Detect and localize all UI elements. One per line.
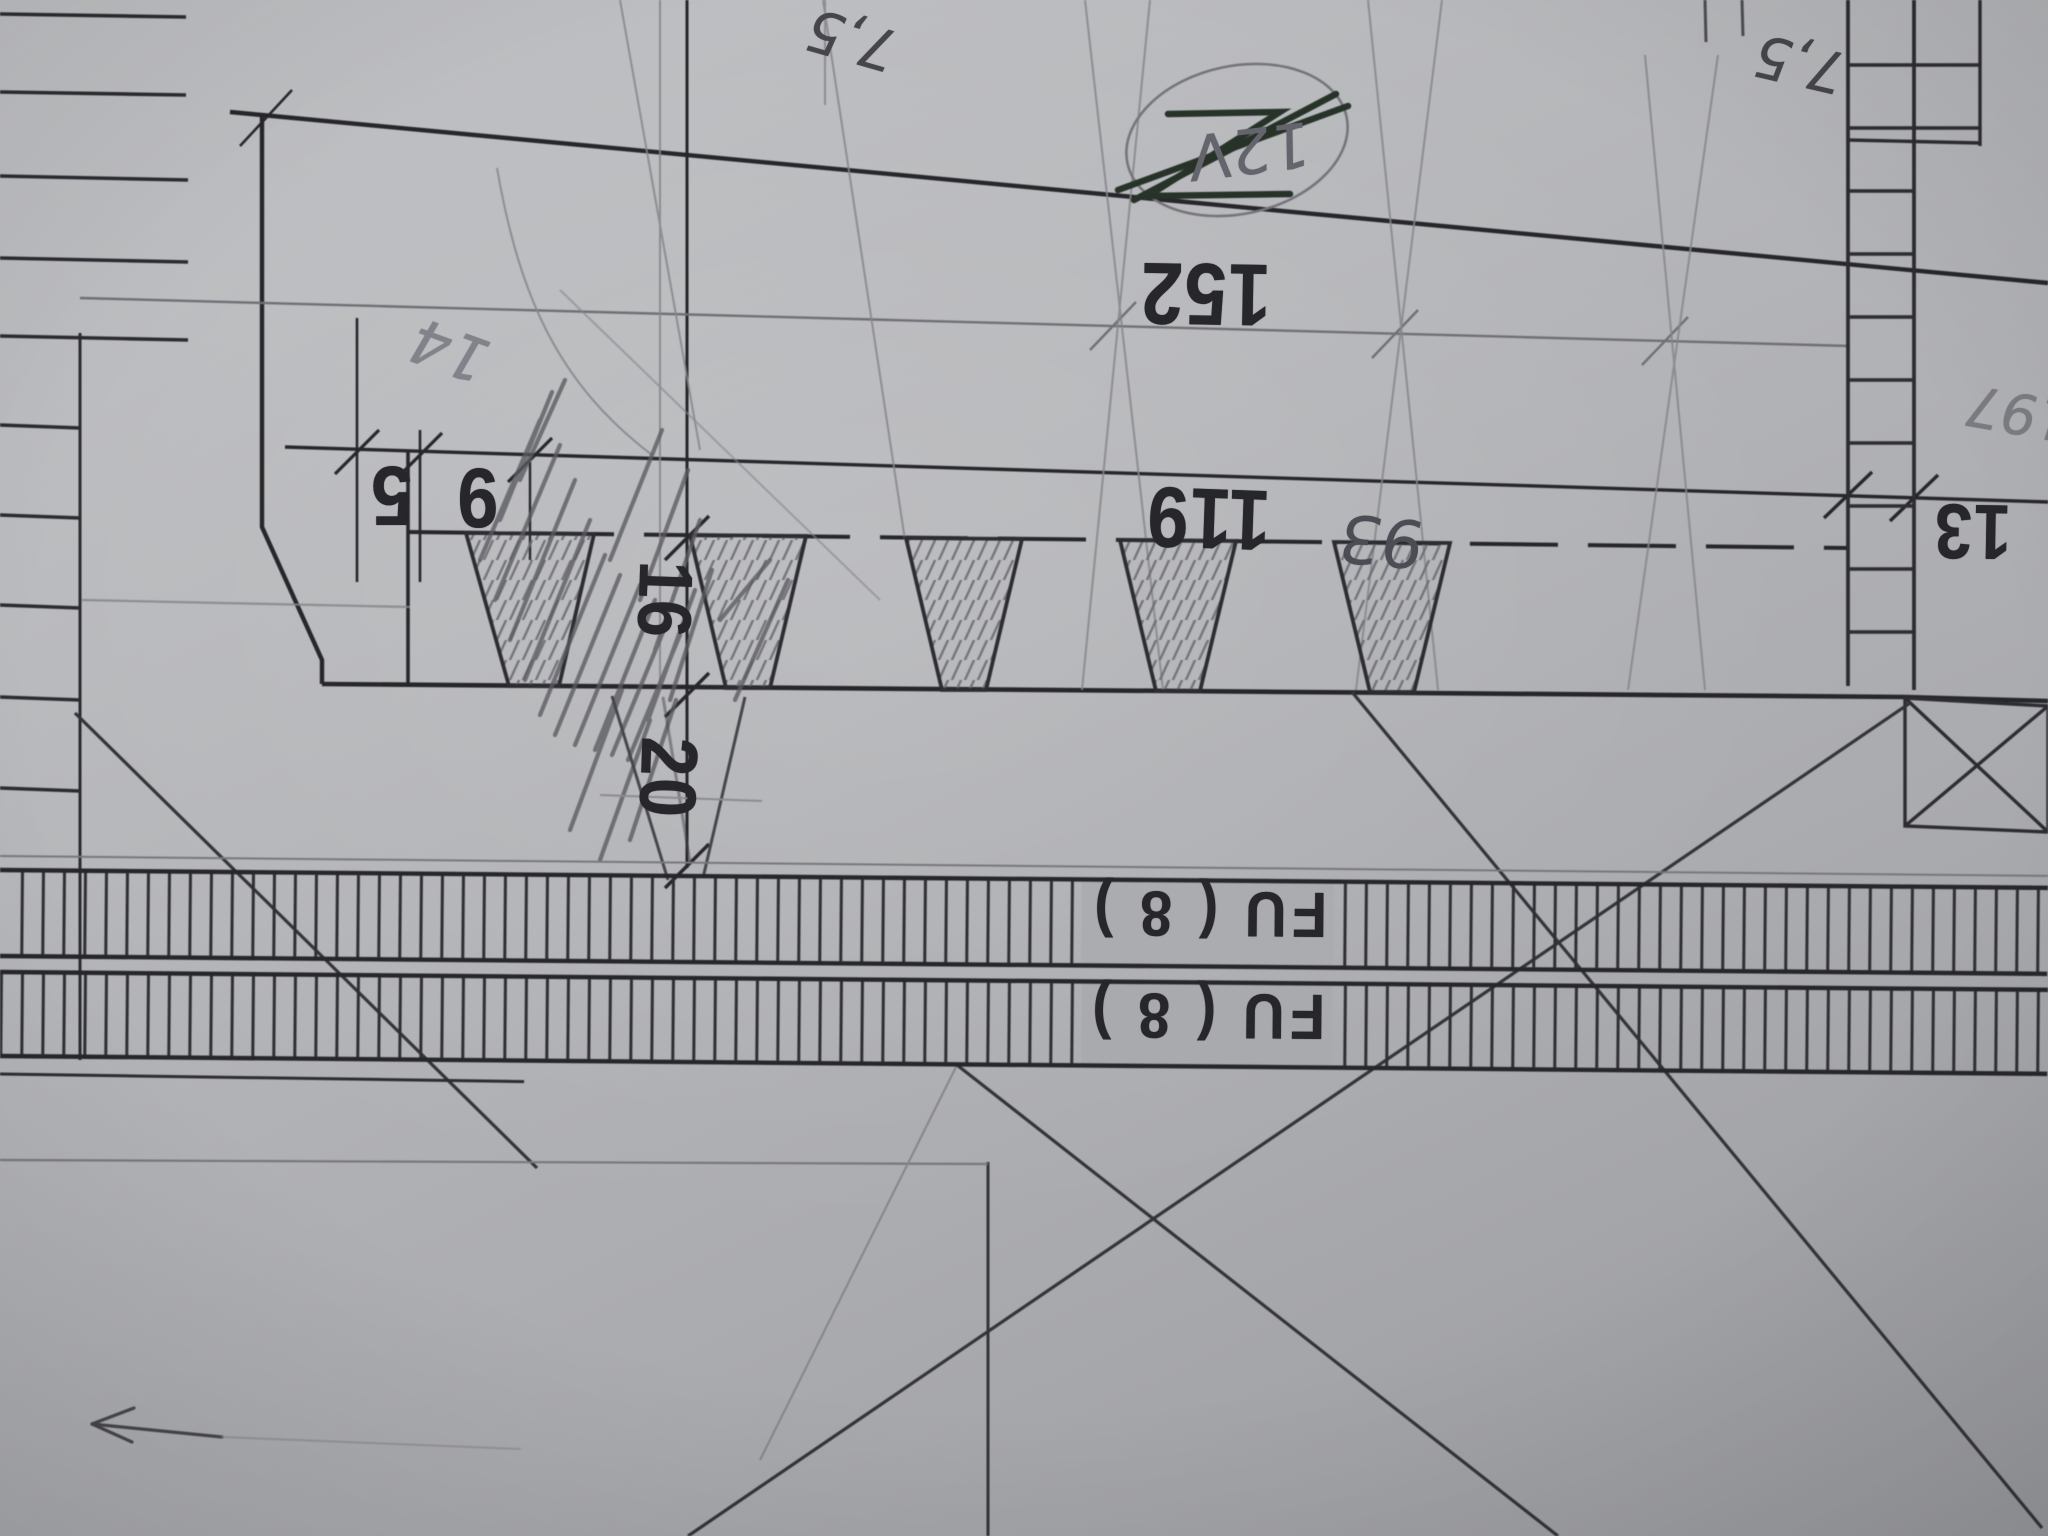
pencil-dimension-line-152 bbox=[80, 298, 1850, 365]
handwritten-12v-crossed: 12V bbox=[1189, 111, 1310, 188]
long-diagonals bbox=[0, 692, 2042, 1536]
rail-band-top bbox=[0, 856, 2048, 974]
trapezoid-2 bbox=[690, 535, 806, 688]
left-arrow bbox=[92, 1408, 520, 1449]
right-ladder bbox=[1848, 0, 1980, 690]
dim-20-label: 20 bbox=[627, 736, 710, 821]
dim-152-label: 152 bbox=[1139, 249, 1272, 339]
hatched-trapezoids bbox=[466, 533, 1450, 692]
fu8-label-top: FU ( 8 ) bbox=[1089, 881, 1328, 947]
fu8-label-bottom: FU ( 8 ) bbox=[1087, 983, 1326, 1049]
dim-16-label: 16 bbox=[625, 560, 704, 641]
handwritten-93: 93 bbox=[1334, 504, 1430, 576]
rail-band-bottom bbox=[0, 972, 2048, 1095]
dim-119-label: 119 bbox=[1144, 473, 1271, 563]
drawing-linework bbox=[0, 0, 2048, 1536]
photo-of-technical-drawing: 152 119 5 9 13 16 20 FU ( 8 ) FU ( 8 ) 7… bbox=[0, 0, 2048, 1536]
right-box-with-diagonals bbox=[1905, 698, 2048, 832]
trapezoid-3 bbox=[906, 538, 1022, 690]
pencil-construction-lines bbox=[82, 0, 1743, 690]
dim-5-label: 5 bbox=[370, 454, 413, 538]
main-outline bbox=[230, 0, 2048, 868]
dim-9-label: 9 bbox=[456, 456, 499, 540]
dim-13-label: 13 bbox=[1932, 492, 2011, 571]
